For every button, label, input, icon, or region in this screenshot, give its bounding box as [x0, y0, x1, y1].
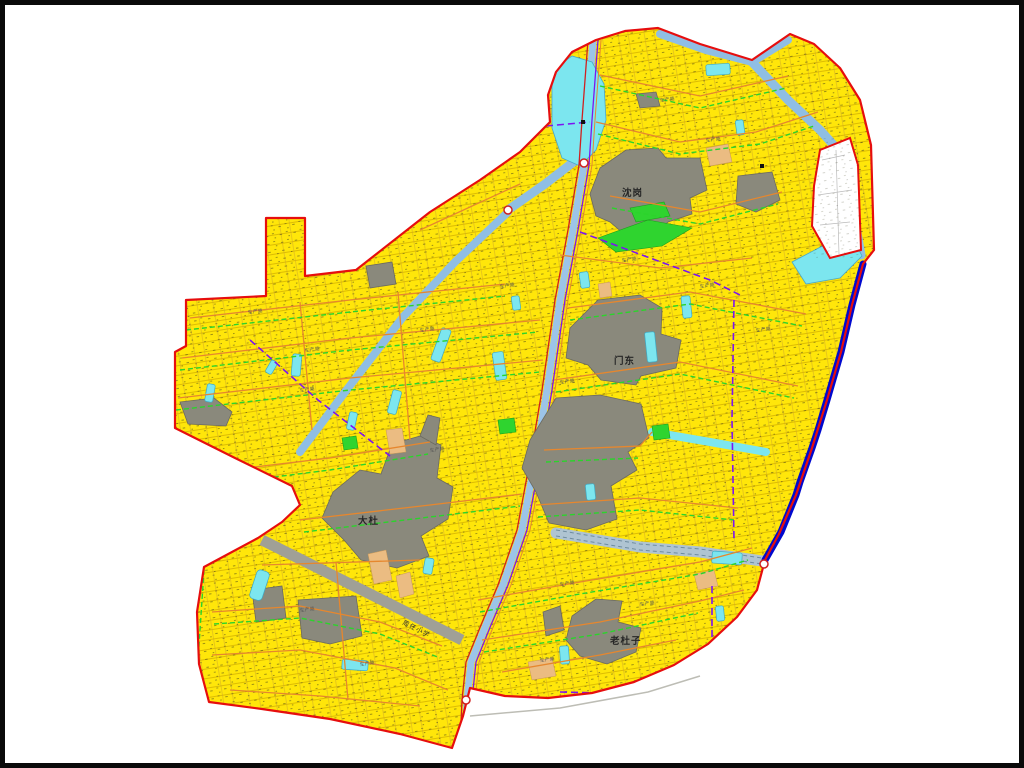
- map-page: 沈岗 门东 大杜 老杜子 周任小学 生产路 生产路 生产路 生产路 生产路 生产…: [0, 0, 1024, 768]
- excluded-area-northeast: [812, 138, 862, 258]
- label-village-laoduzi: 老杜子: [609, 635, 642, 647]
- landuse-map-image[interactable]: 沈岗 门东 大杜 老杜子 周任小学 生产路 生产路 生产路 生产路 生产路 生产…: [0, 0, 1024, 768]
- label-village-mendong: 门东: [614, 355, 635, 367]
- label-village-dadu: 大杜: [358, 515, 379, 527]
- label-village-shengang: 沈岗: [622, 187, 643, 199]
